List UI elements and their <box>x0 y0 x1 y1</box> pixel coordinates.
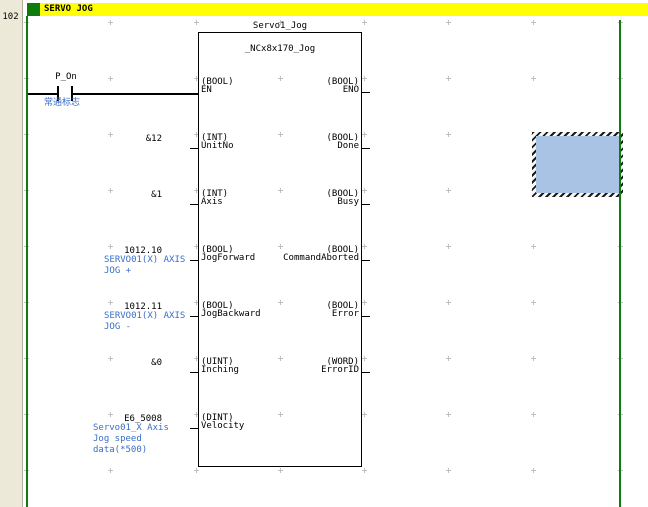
input-pin-tick <box>190 372 198 373</box>
grid-cross <box>278 468 283 473</box>
grid-cross <box>194 468 199 473</box>
grid-cross <box>108 20 113 25</box>
grid-cross <box>362 412 367 417</box>
output-pin-name-eno: ENO <box>250 86 359 95</box>
rung-wire-left <box>28 93 57 95</box>
selection-marquee[interactable] <box>532 132 623 197</box>
grid-cross <box>446 76 451 81</box>
input-operand-comment: JOG - <box>104 323 131 332</box>
input-pin-tick <box>190 148 198 149</box>
grid-cross <box>531 356 536 361</box>
rung-margin[interactable] <box>0 0 23 507</box>
rung-wire-right <box>73 93 198 95</box>
input-operand-inching[interactable]: &0 <box>60 359 162 368</box>
grid-cross <box>108 76 113 81</box>
input-pin-name-velocity: Velocity <box>201 422 244 431</box>
output-pin-name-done: Done <box>250 142 359 151</box>
grid-cross <box>531 468 536 473</box>
grid-cross <box>446 244 451 249</box>
grid-cross <box>446 356 451 361</box>
input-pin-name-inching: Inching <box>201 366 239 375</box>
output-pin-name-busy: Busy <box>250 198 359 207</box>
rung-comment-bar[interactable]: SERVO JOG <box>40 3 648 16</box>
input-pin-name-axis: Axis <box>201 198 223 207</box>
function-block-instance-name[interactable]: Servo1_Jog <box>198 22 362 31</box>
input-pin-name-unitno: UnitNo <box>201 142 234 151</box>
input-operand-comment: SERVO01(X) AXIS <box>104 312 185 321</box>
output-pin-name-errorid: ErrorID <box>250 366 359 375</box>
grid-cross <box>531 20 536 25</box>
contact-comment: 常通标志 <box>44 99 80 108</box>
grid-cross <box>446 468 451 473</box>
selection-fill <box>536 136 619 193</box>
grid-cross <box>446 132 451 137</box>
left-bus-bar <box>26 16 28 507</box>
grid-cross <box>362 76 367 81</box>
grid-cross <box>362 468 367 473</box>
output-pin-name-error: Error <box>250 310 359 319</box>
contact-operand[interactable]: P_On <box>44 73 88 82</box>
grid-cross <box>531 412 536 417</box>
output-pin-tick <box>362 372 370 373</box>
function-block-type-name: _NCx8x170_Jog <box>198 45 362 54</box>
input-pin-name-en: EN <box>201 86 212 95</box>
grid-cross <box>362 132 367 137</box>
grid-cross <box>531 300 536 305</box>
grid-cross <box>362 188 367 193</box>
grid-cross <box>531 244 536 249</box>
grid-cross <box>362 300 367 305</box>
input-pin-tick <box>190 260 198 261</box>
output-pin-tick <box>362 260 370 261</box>
grid-cross <box>446 300 451 305</box>
output-pin-tick <box>362 148 370 149</box>
grid-cross <box>108 468 113 473</box>
input-pin-tick <box>190 428 198 429</box>
grid-cross <box>446 20 451 25</box>
input-operand-comment: JOG + <box>104 267 131 276</box>
output-pin-tick <box>362 316 370 317</box>
input-pin-name-jogforward: JogForward <box>201 254 255 263</box>
rung-comment-marker <box>27 3 40 16</box>
grid-cross <box>362 20 367 25</box>
grid-cross <box>531 76 536 81</box>
input-operand-comment: data(*500) <box>93 446 147 455</box>
output-pin-tick <box>362 204 370 205</box>
ladder-editor-canvas: P_On 常通标志 Servo1_Jog _NCx8x170_Jog (BOOL… <box>0 0 648 507</box>
input-operand-comment: Servo01_X Axis <box>93 424 169 433</box>
grid-cross <box>446 412 451 417</box>
input-pin-tick <box>190 316 198 317</box>
input-operand-comment: SERVO01(X) AXIS <box>104 256 185 265</box>
output-pin-name-commandaborted: CommandAborted <box>250 254 359 263</box>
output-pin-tick <box>362 92 370 93</box>
input-operand-unitno[interactable]: &12 <box>60 135 162 144</box>
grid-cross <box>446 188 451 193</box>
grid-cross <box>362 244 367 249</box>
input-operand-comment: Jog speed <box>93 435 142 444</box>
grid-cross <box>362 356 367 361</box>
input-operand-axis[interactable]: &1 <box>60 191 162 200</box>
rung-number[interactable]: 102 <box>0 13 21 22</box>
input-pin-tick <box>190 204 198 205</box>
right-bus-bar <box>619 20 621 507</box>
